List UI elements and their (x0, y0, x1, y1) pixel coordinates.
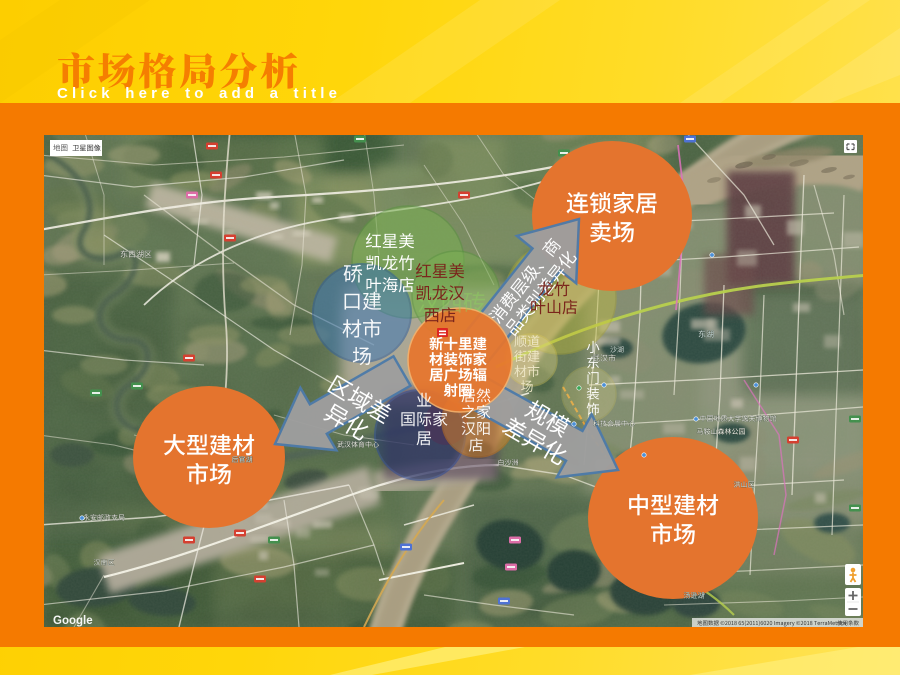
svg-text:Google: Google (53, 615, 93, 627)
